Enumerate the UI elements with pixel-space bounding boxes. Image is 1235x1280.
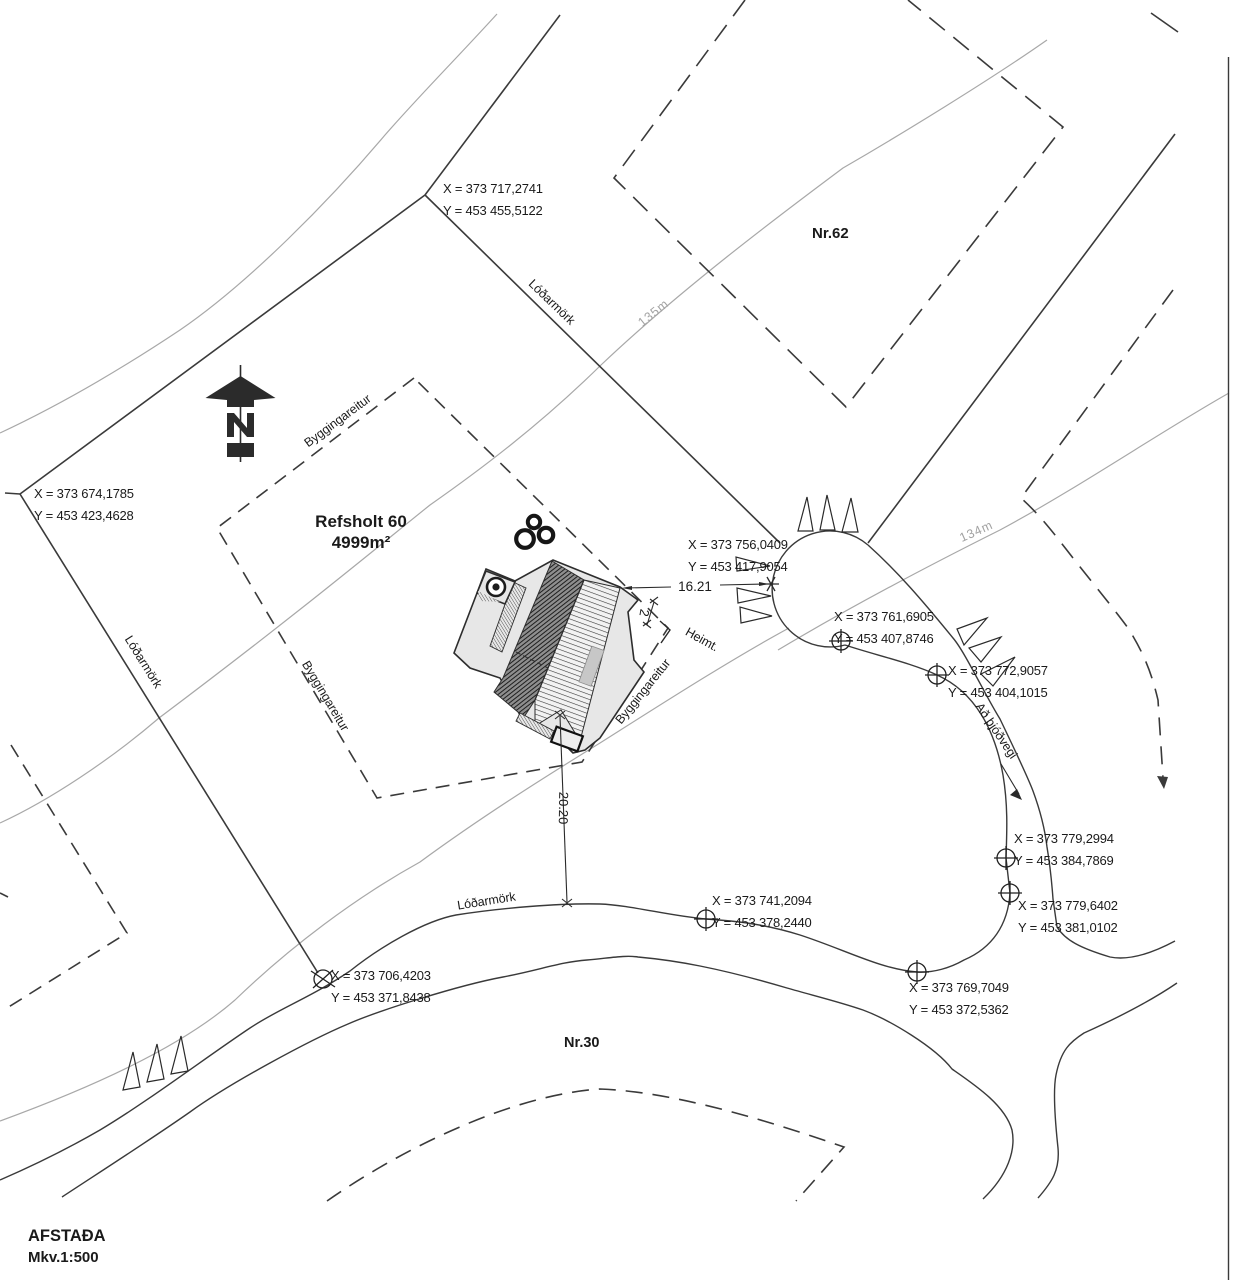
svg-text:Y = 453 407,8746: Y = 453 407,8746 <box>834 631 934 646</box>
svg-text:Y = 453 417,9054: Y = 453 417,9054 <box>688 559 788 574</box>
svg-text:X = 373 772,9057: X = 373 772,9057 <box>948 663 1048 678</box>
svg-text:Mkv.1:500: Mkv.1:500 <box>28 1249 99 1266</box>
svg-text:X = 373 717,2741: X = 373 717,2741 <box>443 181 543 196</box>
svg-text:Y = 453 384,7869: Y = 453 384,7869 <box>1014 853 1114 868</box>
svg-text:X = 373 756,0409: X = 373 756,0409 <box>688 537 788 552</box>
svg-text:4999m²: 4999m² <box>332 533 391 552</box>
svg-text:Y = 453 423,4628: Y = 453 423,4628 <box>34 508 134 523</box>
svg-text:Y = 453 372,5362: Y = 453 372,5362 <box>909 1002 1009 1017</box>
svg-text:Nr.62: Nr.62 <box>812 225 849 242</box>
svg-text:Y = 453 371,8438: Y = 453 371,8438 <box>331 990 431 1005</box>
svg-text:Refsholt 60: Refsholt 60 <box>315 512 407 531</box>
svg-text:X = 373 741,2094: X = 373 741,2094 <box>712 893 812 908</box>
svg-text:X = 373 706,4203: X = 373 706,4203 <box>331 968 431 983</box>
svg-text:20.20: 20.20 <box>556 792 572 825</box>
svg-text:Y = 453 455,5122: Y = 453 455,5122 <box>443 203 543 218</box>
svg-text:X = 373 674,1785: X = 373 674,1785 <box>34 486 134 501</box>
svg-text:X = 373 769,7049: X = 373 769,7049 <box>909 980 1009 995</box>
svg-text:Y = 453 404,1015: Y = 453 404,1015 <box>948 685 1048 700</box>
svg-text:16.21: 16.21 <box>678 579 712 594</box>
svg-text:Y = 453 381,0102: Y = 453 381,0102 <box>1018 920 1118 935</box>
svg-text:AFSTAÐA: AFSTAÐA <box>28 1227 106 1245</box>
svg-text:X = 373 761,6905: X = 373 761,6905 <box>834 609 934 624</box>
svg-text:Y = 453 378,2440: Y = 453 378,2440 <box>712 915 812 930</box>
svg-text:X = 373 779,6402: X = 373 779,6402 <box>1018 898 1118 913</box>
svg-text:Nr.30: Nr.30 <box>564 1035 599 1051</box>
svg-text:X = 373 779,2994: X = 373 779,2994 <box>1014 831 1114 846</box>
